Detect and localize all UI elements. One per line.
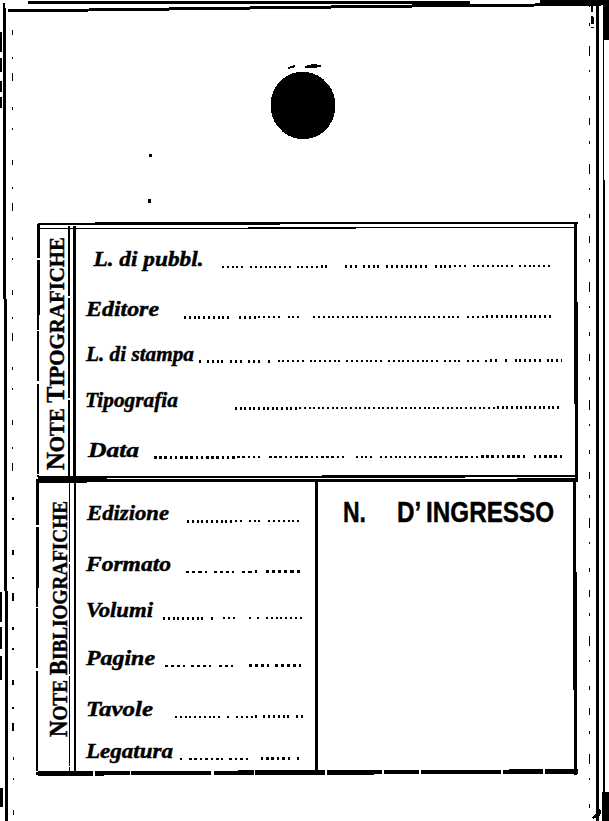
svg-text:Legatura: Legatura xyxy=(85,739,173,763)
svg-text:N.: N. xyxy=(343,496,366,528)
svg-text:NOTE TIPOGRAFICHE: NOTE TIPOGRAFICHE xyxy=(41,237,70,470)
svg-text:D’ INGRESSO: D’ INGRESSO xyxy=(397,496,554,528)
svg-text:Editore: Editore xyxy=(85,297,159,321)
svg-text:NOTE BIBLIOGRAFICHE: NOTE BIBLIOGRAFICHE xyxy=(44,501,73,737)
svg-text:L. di pubbl.: L. di pubbl. xyxy=(92,247,203,271)
svg-text:Formato: Formato xyxy=(85,552,171,576)
svg-text:L. di stampa: L. di stampa xyxy=(85,342,194,366)
svg-text:Tavole: Tavole xyxy=(86,697,153,721)
svg-text:Tipografia: Tipografia xyxy=(85,388,178,412)
svg-text:Edizione: Edizione xyxy=(86,501,169,525)
svg-text:Volumi: Volumi xyxy=(86,598,153,622)
svg-text:Data: Data xyxy=(87,438,139,462)
svg-text:Pagine: Pagine xyxy=(85,646,155,670)
